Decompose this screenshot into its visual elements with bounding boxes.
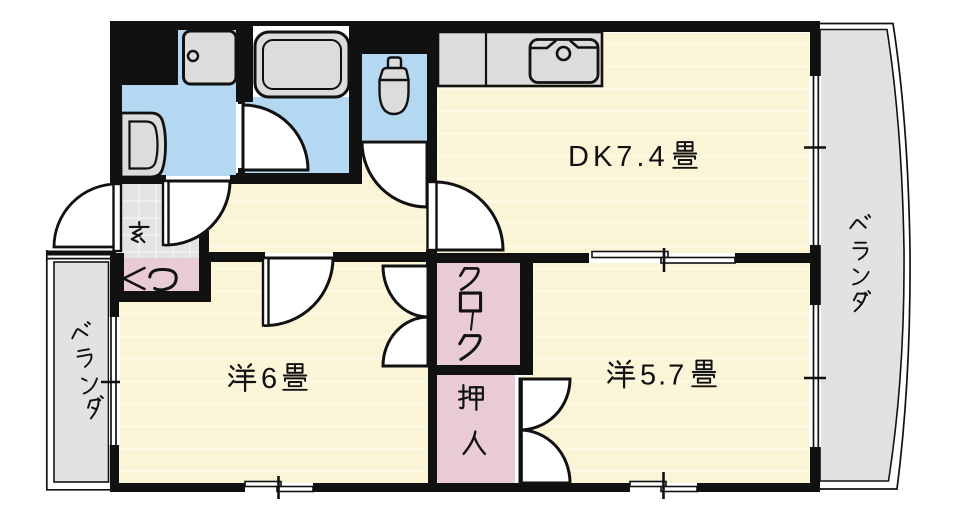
- svg-text:6: 6: [261, 363, 277, 395]
- svg-text:5.7: 5.7: [640, 360, 686, 392]
- svg-text:DK7.4: DK7.4: [568, 141, 669, 173]
